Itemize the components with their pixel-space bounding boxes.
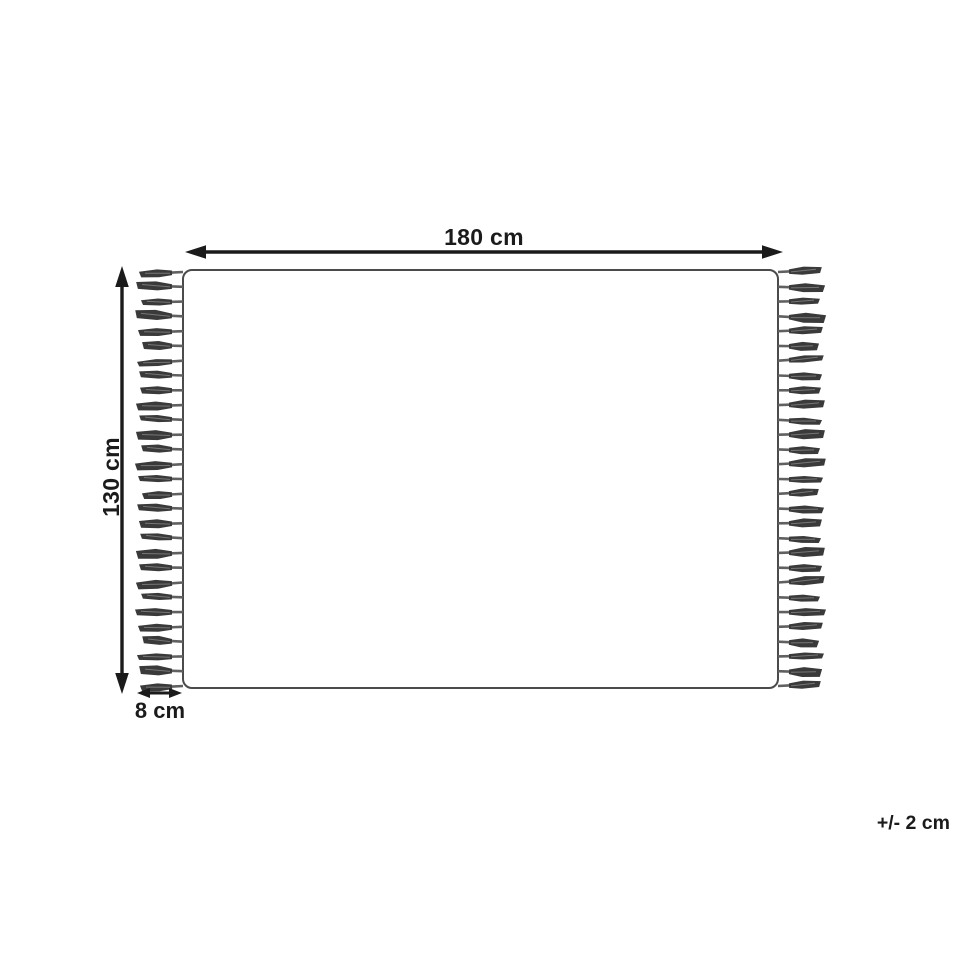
tassel [778, 282, 825, 293]
tassel [778, 652, 824, 660]
height-arrow-head-bottom [115, 673, 129, 694]
tassel [778, 429, 825, 440]
tassel [778, 518, 822, 528]
diagram-svg: 180 cm 130 cm 8 cm +/- 2 cm [0, 0, 960, 960]
dimension-diagram: 180 cm 130 cm 8 cm +/- 2 cm [0, 0, 960, 960]
tassel [778, 341, 819, 351]
tassel-stem [778, 493, 789, 494]
tassel [778, 575, 826, 587]
tassel [137, 503, 183, 513]
tassel-stem [778, 642, 789, 643]
tassel [778, 564, 822, 573]
tassel [135, 309, 183, 321]
tassel [778, 535, 821, 544]
tassel [140, 386, 183, 394]
tassel [135, 460, 183, 471]
tassel [139, 370, 183, 380]
tassel-stem [778, 685, 789, 686]
tassel-stem [778, 420, 789, 421]
tassel [778, 372, 822, 382]
tassel [778, 386, 821, 394]
tassel [778, 608, 826, 616]
tassel [136, 430, 183, 441]
tassel [778, 416, 822, 425]
tassel [778, 594, 820, 602]
tassel [142, 490, 183, 500]
tassel-stem [172, 316, 183, 317]
tassel [778, 266, 822, 276]
tassel [139, 414, 183, 423]
tassel [138, 475, 183, 483]
tassel [778, 546, 825, 558]
tassel-stem [778, 360, 789, 361]
tassel [140, 532, 183, 541]
tassel [778, 445, 820, 454]
tassel [778, 311, 826, 323]
tassel [139, 519, 183, 529]
tassel-stem [778, 271, 789, 272]
tolerance-label: +/- 2 cm [877, 812, 950, 834]
tassel [138, 327, 183, 337]
tassel [136, 281, 183, 292]
tassel [778, 476, 823, 484]
tassel-stem [172, 361, 183, 362]
tassel-stem [778, 582, 789, 583]
tassel [135, 608, 183, 616]
tassel [778, 680, 821, 690]
tassel-stem [172, 272, 183, 273]
tassel [136, 548, 183, 560]
tassel-stem [778, 464, 789, 465]
tassel [778, 399, 825, 410]
tassel [778, 666, 822, 678]
fringe-arrow-head-right [169, 688, 182, 698]
tassel [138, 623, 183, 633]
tassel [778, 621, 823, 631]
tassel-stem [172, 419, 183, 420]
tassel [142, 635, 183, 646]
tassel [778, 488, 819, 498]
tassel [136, 401, 183, 412]
tassel [778, 354, 824, 364]
tassel [778, 457, 826, 468]
right-tassels [778, 266, 827, 690]
tassel [142, 341, 183, 351]
tassel-stem [172, 494, 183, 495]
tassel [778, 637, 819, 648]
rug-outline [183, 270, 778, 688]
tassel [778, 505, 824, 515]
tassel [139, 563, 183, 572]
tassel-stem [172, 641, 183, 642]
tassel [141, 444, 183, 453]
width-label: 180 cm [444, 224, 524, 250]
tassel-stem [778, 316, 789, 317]
tassel [137, 653, 183, 661]
tassel [141, 592, 183, 600]
tassel-stem [172, 538, 183, 539]
left-tassels [135, 268, 184, 692]
tassel-stem [778, 538, 789, 539]
tassel [141, 298, 183, 306]
tassel [778, 297, 820, 305]
fringe-label: 8 cm [135, 698, 185, 723]
tassel [778, 326, 823, 336]
width-arrow-head-right [762, 245, 783, 259]
height-arrow-head-top [115, 266, 129, 287]
width-arrow-head-left [185, 245, 206, 259]
tassel-stem [172, 464, 183, 465]
tassel-stem [172, 583, 183, 584]
tassel [139, 268, 183, 278]
tassel [139, 665, 183, 677]
height-label: 130 cm [98, 437, 124, 517]
tassel-stem [172, 686, 183, 687]
tassel [136, 578, 184, 590]
tassel [137, 357, 183, 367]
